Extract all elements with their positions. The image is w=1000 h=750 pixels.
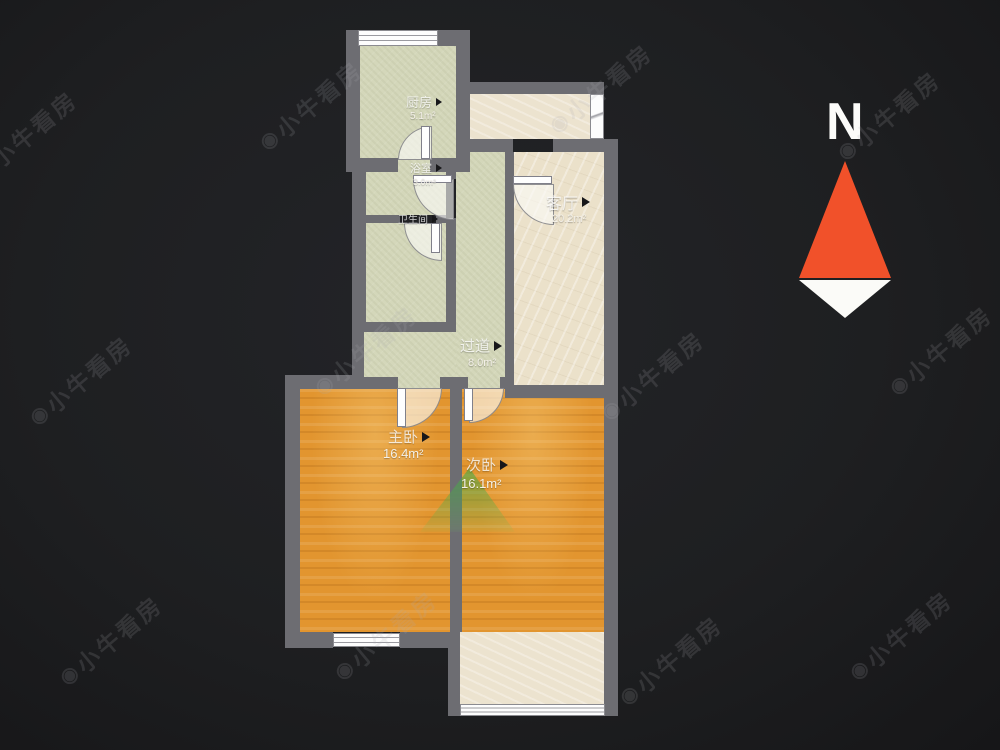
- bath-area: 3.0m²: [413, 177, 436, 187]
- wall: [505, 385, 618, 398]
- wall: [438, 30, 456, 46]
- bath-label: 浴室: [410, 160, 442, 176]
- compass-needle-tail-icon: [799, 280, 891, 318]
- living-room-area: 20.2m²: [552, 213, 586, 225]
- watermark: ◉小牛看房: [881, 297, 999, 404]
- entry-strip-floor: [470, 94, 590, 139]
- entry-door: [590, 94, 604, 139]
- watermark-logo-icon: ◉: [844, 655, 873, 685]
- watermark-logo-icon: ◉: [329, 655, 358, 685]
- watermark: ◉小牛看房: [611, 607, 729, 714]
- wall: [456, 82, 604, 94]
- kitchen-label: 厨房: [406, 92, 442, 111]
- kitchen-window: [358, 30, 438, 46]
- wall: [448, 632, 460, 716]
- toilet-door-leaf: [431, 223, 440, 253]
- wall: [553, 139, 618, 152]
- wall: [352, 322, 456, 332]
- room-pointer-icon: [436, 164, 442, 172]
- floorplan-canvas: 厨房 5.1m² 浴室 3.0m² 卫生间 客厅 20.2m² 过道 8.0m²…: [0, 0, 1000, 750]
- room-pointer-icon: [422, 432, 430, 442]
- kitchen-area: 5.1m²: [410, 111, 436, 122]
- master-bedroom-window: [333, 633, 400, 647]
- master-bedroom-label: 主卧: [388, 426, 430, 447]
- kitchen-name: 厨房: [406, 92, 432, 111]
- wall: [352, 158, 366, 332]
- room-pointer-icon: [582, 197, 590, 207]
- toilet-label: 卫生间: [398, 211, 438, 226]
- watermark: ◉小牛看房: [51, 587, 169, 694]
- bath-name: 浴室: [410, 160, 432, 176]
- watermark-logo-icon: ◉: [254, 125, 283, 155]
- watermark-logo-icon: ◉: [884, 370, 913, 400]
- wall: [446, 218, 456, 332]
- wall: [300, 377, 398, 389]
- master-bedroom-name: 主卧: [388, 426, 418, 447]
- room-pointer-icon: [500, 460, 508, 470]
- wall: [456, 139, 513, 152]
- master-bedroom-door-leaf: [397, 388, 406, 427]
- watermark-logo-icon: ◉: [614, 680, 643, 710]
- second-bedroom-name: 次卧: [466, 454, 496, 475]
- balcony-window: [460, 704, 605, 716]
- kitchen-door-leaf: [421, 126, 430, 159]
- watermark-logo-icon: ◉: [24, 400, 53, 430]
- master-bedroom-area: 16.4m²: [383, 446, 423, 461]
- watermark: ◉小牛看房: [841, 582, 959, 689]
- second-bedroom-door-leaf: [464, 388, 473, 421]
- watermark: ◉小牛看房: [21, 327, 139, 434]
- wall: [364, 215, 400, 223]
- living-room-label: 客厅: [546, 190, 590, 214]
- wall: [285, 375, 300, 648]
- room-pointer-icon: [436, 98, 442, 106]
- toilet-name: 卫生间: [398, 211, 428, 226]
- hallway-name: 过道: [460, 335, 490, 356]
- living-room-door-leaf: [513, 176, 552, 184]
- room-pointer-icon: [494, 341, 502, 351]
- balcony-floor: [460, 632, 605, 706]
- hallway-area: 8.0m²: [468, 357, 496, 369]
- compass-needle-icon: [799, 161, 891, 278]
- hallway-label: 过道: [460, 335, 502, 356]
- second-bedroom-label: 次卧: [466, 454, 508, 475]
- wall: [346, 30, 360, 172]
- compass-north-label: N: [826, 92, 864, 152]
- watermark-logo-icon: ◉: [54, 660, 83, 690]
- watermark: ◉小牛看房: [0, 82, 84, 189]
- wall: [285, 632, 333, 648]
- living-room-name: 客厅: [546, 190, 578, 214]
- wall: [604, 632, 618, 716]
- room-pointer-icon: [432, 215, 438, 223]
- second-bedroom-area: 16.1m²: [461, 476, 501, 491]
